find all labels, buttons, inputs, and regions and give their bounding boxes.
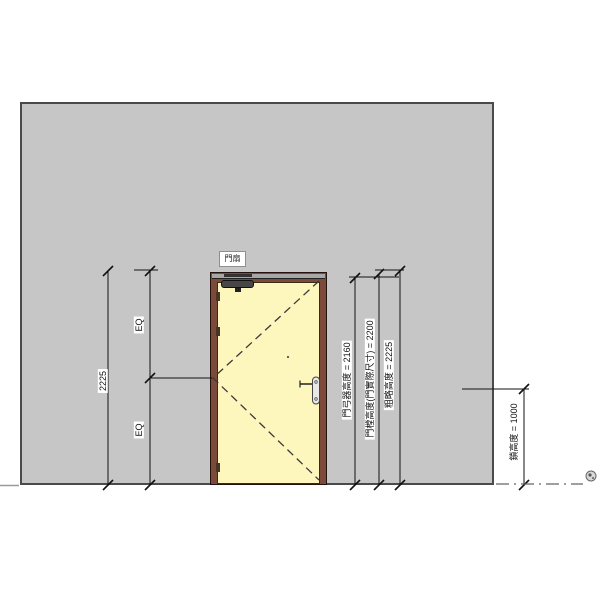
dim-closer-height-label[interactable]: 門弓器高度 = 2160 [342, 340, 352, 419]
dim-panel-height-label[interactable]: 門樘高度(門實際尺寸) = 2200 [365, 318, 375, 439]
dim-eq-bottom-label[interactable]: EQ [134, 421, 144, 438]
level-marker-icon [586, 471, 596, 481]
door-closer-channel [224, 274, 252, 277]
dim-eq-top-label[interactable]: EQ [134, 316, 144, 333]
door-closer [221, 280, 254, 288]
dim-tick [519, 480, 529, 490]
door-closer-arm [235, 288, 241, 292]
dim-tick [519, 384, 529, 394]
hinge-top [216, 292, 220, 301]
dim-lock-height-label[interactable]: 鎖高度 = 1000 [509, 401, 519, 462]
hinge-middle [216, 327, 220, 336]
dim-rough-height-label[interactable]: 粗略高度 = 2225 [384, 340, 394, 410]
door-leaf-tag[interactable]: 門扇 [219, 251, 246, 267]
drawing-canvas: 門扇 2225 EQ EQ 門弓器高度 = 2160 門樘高度(門實際尺寸) =… [0, 0, 600, 600]
door-leaf[interactable] [217, 282, 320, 484]
hinge-bottom [216, 463, 220, 472]
dim-overall-height-label[interactable]: 2225 [98, 369, 108, 393]
